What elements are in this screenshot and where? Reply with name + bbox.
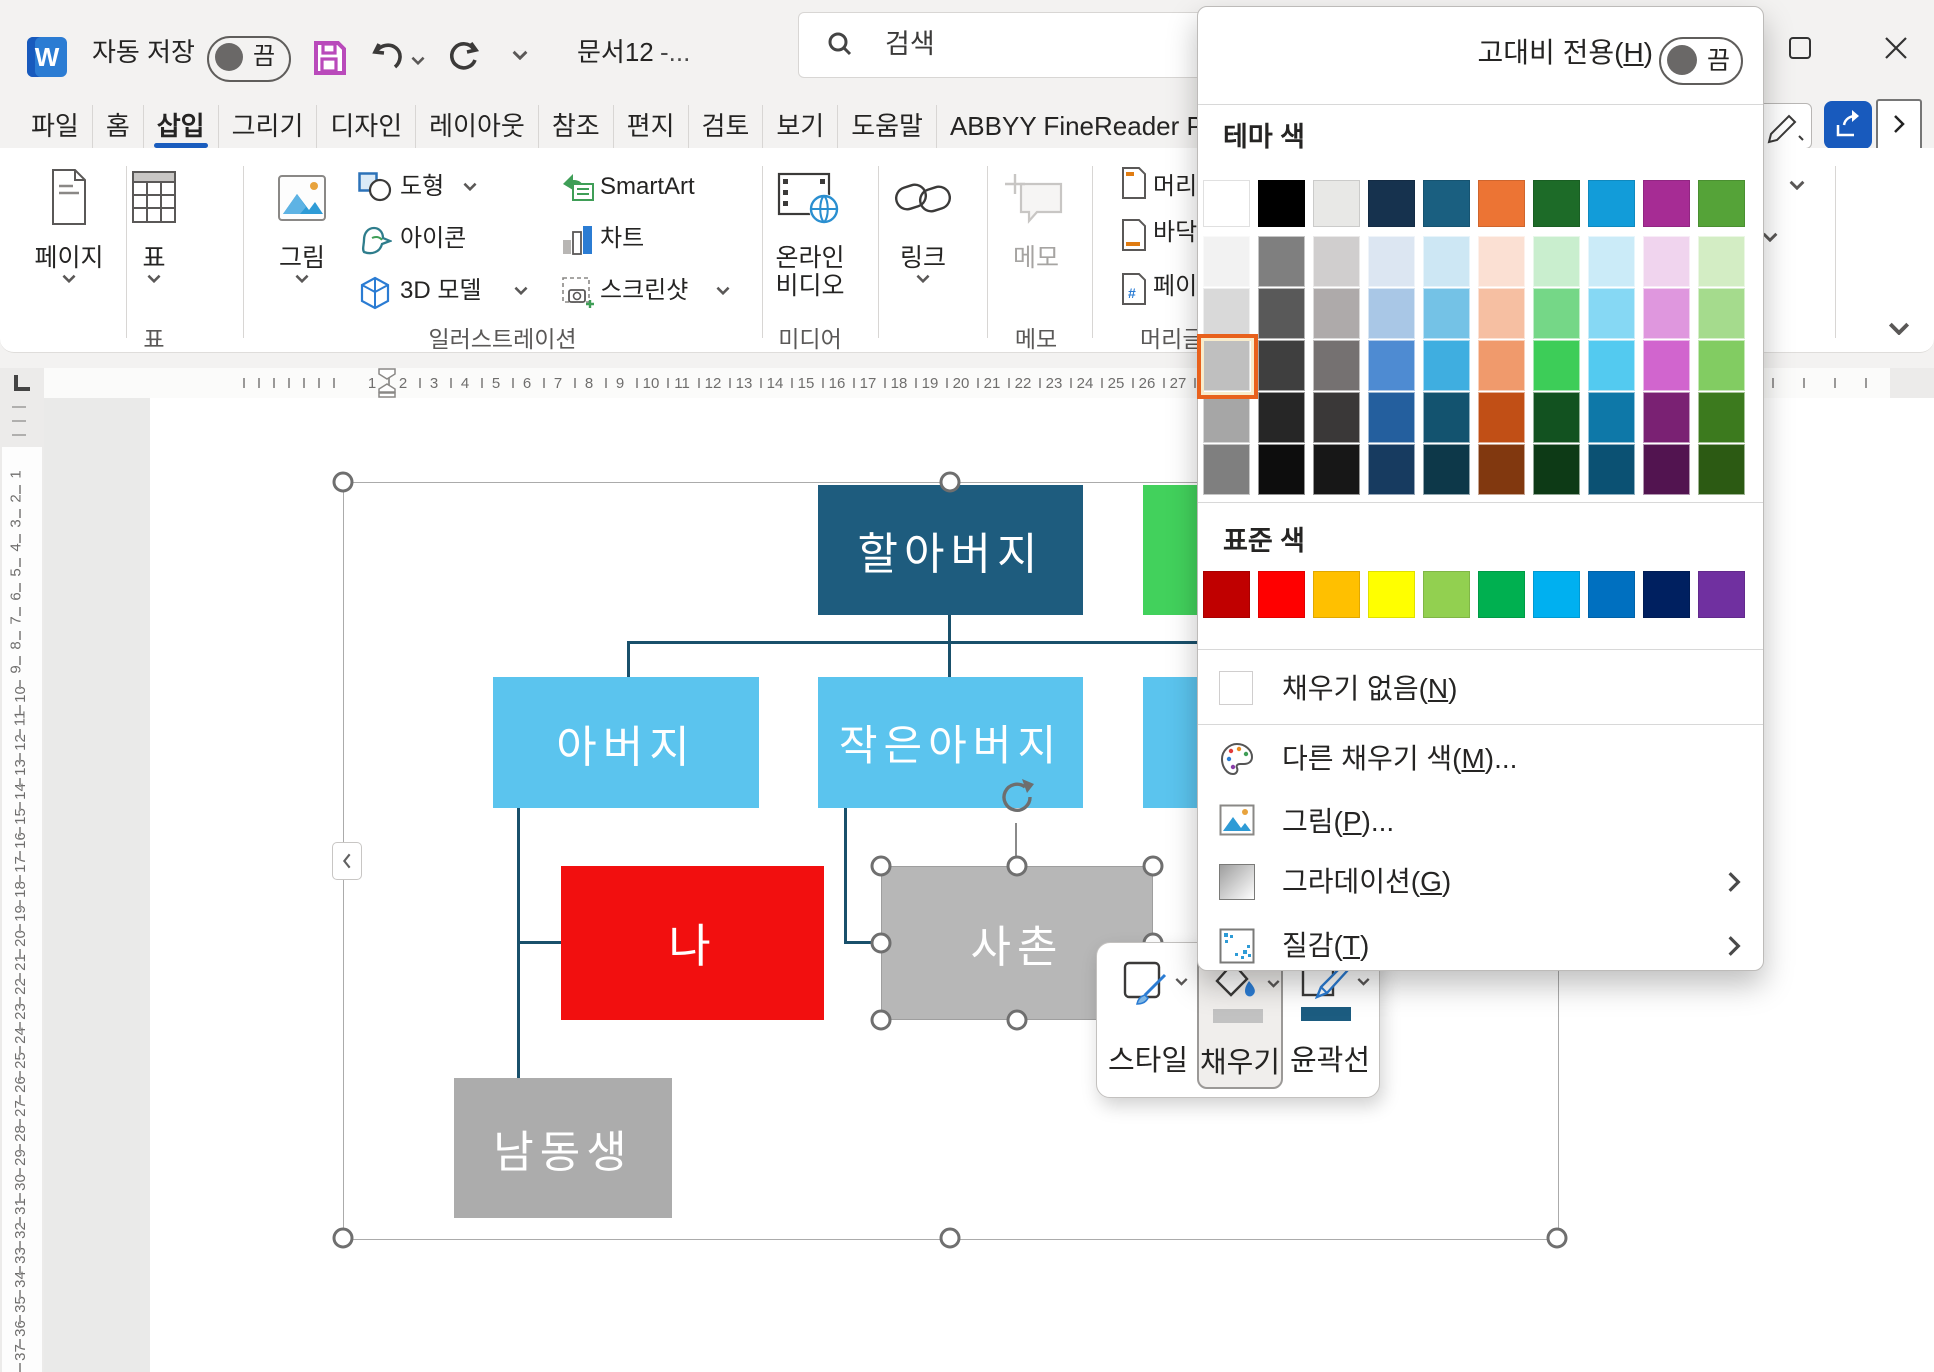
ribbon-tab[interactable]: 디자인 [316,105,415,148]
ruler-number: 7 [8,617,25,625]
ruler-number: 6 [8,592,25,600]
standard-color-swatch[interactable] [1588,571,1635,618]
ruler-tick [12,434,26,436]
ruler-tick [19,1315,21,1324]
ribbon-tab[interactable]: 그리기 [218,105,317,148]
rotate-handle-icon[interactable] [994,774,1040,820]
fill-color-dropdown: 고대비 전용(H) 끔 테마 색 표준 색 채우기 없음(N) 다른 채우기 색… [1197,6,1764,971]
menu-item-more-colors[interactable]: 다른 채우기 색(M)... [1213,737,1753,781]
hanging-indent-marker[interactable] [378,383,396,398]
resize-handle[interactable] [871,1010,892,1031]
word-window: W 자동 저장 끔 문서12 -... 검색 [0,0,1934,1372]
smartart-icon[interactable] [561,172,595,202]
ruler-number: 4 [8,544,25,552]
ruler-number: 2 [8,495,25,503]
ruler-tick [19,583,21,592]
share-button[interactable] [1824,101,1872,149]
ruler-tick [19,1217,21,1226]
resize-handle[interactable] [940,472,961,493]
ruler-tick [853,378,855,388]
style-brush-icon [1121,959,1173,1011]
ribbon-tab[interactable]: 도움말 [837,105,936,148]
ruler-tick [19,1193,21,1202]
ruler-tick [19,1241,21,1250]
picture-icon [1219,804,1255,836]
theme-color-swatch[interactable] [1643,180,1690,227]
theme-variant-swatch[interactable] [1643,392,1690,443]
toggle-knob-icon [1667,45,1697,75]
submenu-chevron-icon [1727,935,1741,957]
hidden-group-chevron-icon[interactable] [1789,180,1805,190]
ruler-tick [822,378,824,388]
ruler-tick [19,1046,21,1055]
ruler-tick [19,851,21,860]
ruler-tick [12,420,26,422]
standard-color-swatch[interactable] [1258,571,1305,618]
ruler-tick [19,485,21,494]
standard-color-swatch[interactable] [1698,571,1745,618]
shapes-button[interactable]: 도형 [400,170,444,204]
standard-color-swatch[interactable] [1478,571,1525,618]
ruler-end [1890,368,1934,398]
theme-variant-swatch[interactable] [1368,444,1415,495]
redo-button[interactable] [446,40,480,72]
ruler-tick [19,875,21,884]
more-options-button[interactable] [1876,99,1922,151]
theme-color-swatch[interactable] [1368,180,1415,227]
ruler-tick [19,900,21,909]
undo-dropdown-icon[interactable] [411,56,425,65]
ribbon-separator [243,166,244,338]
shapes-icon[interactable] [358,172,392,202]
ruler-tick [273,378,275,388]
ruler-number: 13 [736,375,753,392]
menu-separator [1198,502,1763,503]
style-label: 스타일 [1105,1037,1191,1079]
icons-icon[interactable] [358,224,392,256]
fill-button[interactable]: 채우기 [1197,951,1283,1089]
ruler-tick [543,378,545,388]
ribbon-tab[interactable]: 삽입 [143,105,218,148]
maximize-button[interactable] [1782,30,1818,66]
ruler-number: 25 [1108,375,1125,392]
media-group-label: 미디어 [769,320,851,354]
ruler-tick [1194,378,1196,388]
ruler-tick [19,802,21,811]
illustration-group-label: 일러스트레이션 [400,320,605,354]
table-icon[interactable] [131,170,177,224]
theme-colors-label: 테마 색 [1223,115,1305,154]
theme-variant-swatch[interactable] [1423,444,1470,495]
theme-variant-swatch[interactable] [1698,444,1745,495]
comment-icon[interactable] [1003,170,1067,228]
ruler-number: 8 [8,641,25,649]
ribbon-tab[interactable]: 참조 [538,105,613,148]
theme-variant-swatch[interactable] [1423,340,1470,391]
ruler-tick [19,1290,21,1299]
menu-separator [1198,724,1763,725]
ruler-tick [243,378,245,388]
ruler-tick [667,378,669,388]
ruler-number: 5 [492,375,500,392]
link-icon[interactable] [893,176,953,220]
3d-model-chevron-icon [514,286,528,295]
theme-color-swatch[interactable] [1423,180,1470,227]
ruler-tick [19,558,21,567]
theme-variant-swatch[interactable] [1368,392,1415,443]
ruler-number: 12 [705,375,722,392]
standard-color-swatch[interactable] [1423,571,1470,618]
high-contrast-toggle[interactable]: 끔 [1659,37,1743,85]
ruler-tick [19,1119,21,1128]
ruler-number: 23 [1046,375,1063,392]
ruler-tick [19,509,21,518]
footer-button[interactable]: 바닥글 [1153,216,1197,250]
theme-variant-swatch[interactable] [1698,288,1745,339]
menu-item-texture[interactable]: 질감(T) [1213,924,1753,968]
outline-label: 윤곽선 [1287,1037,1373,1079]
ruler-tick [19,1144,21,1153]
theme-variant-swatch[interactable] [1643,444,1690,495]
ruler-tick [1865,378,1867,388]
link-chevron-icon [916,274,930,283]
ribbon-separator [987,166,988,338]
chevron-down-icon [1357,977,1370,986]
toggle-knob-icon [215,43,243,71]
ruler-tick [19,949,21,958]
ruler-tick [19,1168,21,1177]
smartart-button[interactable]: SmartArt [600,170,695,204]
ruler-number: 3 [8,519,25,527]
ruler-number: 20 [953,375,970,392]
standard-color-swatch[interactable] [1643,571,1690,618]
theme-variant-swatch[interactable] [1203,444,1250,495]
theme-variant-swatch[interactable] [1423,392,1470,443]
ruler-tick [760,378,762,388]
page-number-icon[interactable]: # [1121,272,1147,306]
theme-variant-swatch[interactable] [1313,444,1360,495]
theme-variant-swatch[interactable] [1203,288,1250,339]
icons-button[interactable]: 아이콘 [400,222,466,256]
theme-variant-swatch[interactable] [1258,236,1305,287]
theme-variant-swatch[interactable] [1478,444,1525,495]
ruler-tick [946,378,948,388]
ruler-tick [12,406,26,408]
ruler-tick [1101,378,1103,388]
ribbon-tab[interactable]: 검토 [688,105,763,148]
search-input[interactable]: 검색 [798,12,1220,78]
hidden-group-chevron-icon[interactable] [1762,232,1778,242]
theme-variant-swatch[interactable] [1643,236,1690,287]
ribbon-tab[interactable]: 보기 [762,105,837,148]
theme-variant-swatch[interactable] [1368,236,1415,287]
ruler-corner [0,368,44,398]
theme-variant-swatch[interactable] [1258,288,1305,339]
ruler-tick [636,378,638,388]
menu-item-picture[interactable]: 그림(P)... [1213,800,1753,844]
theme-variant-swatch[interactable] [1533,392,1580,443]
ruler-number: 1 [8,470,25,478]
standard-color-swatch[interactable] [1368,571,1415,618]
texture-icon [1219,928,1255,964]
theme-variant-swatch[interactable] [1478,392,1525,443]
style-button[interactable]: 스타일 [1105,951,1191,1089]
pages-button[interactable]: 페이지 [28,238,110,274]
ruler-tick [450,378,452,388]
ruler-number: 21 [984,375,1001,392]
high-contrast-label: 고대비 전용(H) [1478,31,1653,71]
pages-icon[interactable] [49,168,89,226]
first-line-indent-marker[interactable] [378,368,396,380]
menu-item-no-fill[interactable]: 채우기 없음(N) [1213,667,1753,711]
theme-variant-swatch[interactable] [1643,288,1690,339]
ruler-tick [19,534,21,543]
ruler-tick [19,631,21,640]
resize-handle[interactable] [333,472,354,493]
theme-variant-swatch[interactable] [1368,340,1415,391]
standard-color-swatch[interactable] [1533,571,1580,618]
ruler-number: 17 [860,375,877,392]
theme-variant-swatch[interactable] [1588,392,1635,443]
standard-color-grid [1203,571,1745,618]
draw-pen-button[interactable] [1758,103,1812,149]
pages-chevron-icon [62,274,76,283]
ruler-tick [1039,378,1041,388]
table-group-label: 표 [113,320,195,354]
header-icon[interactable] [1121,166,1147,200]
resize-handle[interactable] [940,1228,961,1249]
fill-label: 채우기 [1199,1039,1281,1081]
ruler-tick [19,997,21,1006]
outline-color-bar [1301,1007,1351,1021]
ribbon-tab[interactable]: 파일 [18,105,92,148]
ruler-tick [19,973,21,982]
chart-icon[interactable] [561,224,595,256]
ruler-number: 10 [643,375,660,392]
screenshot-chevron-icon [716,286,730,295]
ruler-tick [19,607,21,616]
table-button[interactable]: 표 [113,238,195,274]
ruler-tick [19,705,21,714]
menu-item-gradient[interactable]: 그라데이션(G) [1213,860,1753,904]
memo-button[interactable]: 메모 [995,238,1077,274]
ribbon-tab[interactable]: 홈 [92,105,143,148]
ruler-tick [19,1266,21,1275]
ruler-tick [19,1095,21,1104]
undo-button[interactable] [371,40,405,72]
theme-color-swatch[interactable] [1313,180,1360,227]
standard-color-swatch[interactable] [1203,571,1250,618]
autosave-toggle[interactable]: 끔 [207,36,291,82]
theme-color-swatch[interactable] [1478,180,1525,227]
text-pane-toggle-button[interactable] [332,842,362,880]
header-button[interactable]: 머리글 [1153,170,1197,204]
ribbon-separator [1835,166,1836,338]
ruler-number: 15 [798,375,815,392]
ruler-tick [884,378,886,388]
ruler-number: 4 [461,375,469,392]
theme-variant-swatch[interactable] [1258,392,1305,443]
menu-separator [1198,104,1763,105]
ribbon-separator [762,166,763,338]
ruler-number: 9 [8,666,25,674]
theme-variant-swatch[interactable] [1258,340,1305,391]
outline-button[interactable]: 윤곽선 [1287,951,1373,1089]
ruler-tick [1132,378,1134,388]
standard-color-swatch[interactable] [1313,571,1360,618]
ruler-tick [19,753,21,762]
resize-handle[interactable] [333,1228,354,1249]
picture-button[interactable]: 그림 [261,238,343,274]
theme-variant-swatch[interactable] [1533,236,1580,287]
autosave-label: 자동 저장 [92,0,195,105]
ruler-tick [1070,378,1072,388]
theme-variant-swatch[interactable] [1368,288,1415,339]
theme-variant-swatch[interactable] [1478,340,1525,391]
save-icon[interactable] [313,40,347,76]
document-title: 문서12 [577,0,654,105]
gradient-icon [1219,864,1255,900]
theme-variant-swatch[interactable] [1313,288,1360,339]
ruler-number: 27 [1170,375,1187,392]
theme-color-swatch[interactable] [1533,180,1580,227]
chart-button[interactable]: 차트 [600,222,644,256]
quick-access-chevron-icon[interactable] [512,50,528,60]
ruler-tick [19,1071,21,1080]
ruler-number: 14 [767,375,784,392]
resize-handle[interactable] [1547,1228,1568,1249]
ruler-tick [698,378,700,388]
theme-variant-swatch[interactable] [1588,288,1635,339]
page-number-button[interactable]: 페이지 번호 [1153,270,1197,304]
ruler-tick [729,378,731,388]
picture-icon[interactable] [277,172,327,224]
theme-variant-grid [1203,236,1745,495]
ruler-tick [19,778,21,787]
theme-variant-swatch[interactable] [1313,236,1360,287]
theme-color-swatch[interactable] [1698,180,1745,227]
ruler-number: 22 [1015,375,1032,392]
search-icon [827,31,853,57]
resize-handle[interactable] [871,933,892,954]
ruler-tick [19,924,21,933]
theme-variant-swatch[interactable] [1313,340,1360,391]
theme-variant-swatch[interactable] [1478,288,1525,339]
theme-variant-swatch[interactable] [1698,236,1745,287]
link-button[interactable]: 링크 [882,238,964,274]
ruler-tick [791,378,793,388]
ruler-tick [574,378,576,388]
ribbon-tab[interactable]: 편지 [613,105,688,148]
high-contrast-state: 끔 [1707,43,1730,79]
ribbon-tab[interactable]: 레이아웃 [415,105,538,148]
ruler-tick [977,378,979,388]
3d-model-icon[interactable] [358,276,392,310]
collapse-ribbon-chevron-icon[interactable] [1888,322,1910,335]
ruler-tick [19,1022,21,1031]
ruler-number: 16 [829,375,846,392]
ruler-tick [19,1363,21,1372]
3d-model-button[interactable]: 3D 모델 [400,274,482,308]
resize-handle[interactable] [871,856,892,877]
ribbon-separator [1092,166,1093,338]
ruler-tick [288,378,290,388]
theme-variant-swatch[interactable] [1533,340,1580,391]
ruler-tick [915,378,917,388]
ruler-number: 3 [430,375,438,392]
ruler-tick [19,656,21,665]
palette-icon [1219,741,1255,777]
theme-color-swatch[interactable] [1588,180,1635,227]
ruler-tick [1163,378,1165,388]
tab-selector-icon[interactable] [14,375,30,391]
theme-variant-swatch[interactable] [1203,392,1250,443]
ruler-tick [605,378,607,388]
word-logo-icon[interactable]: W [27,37,67,77]
ruler-number: 2 [399,375,407,392]
ruler-number: 7 [554,375,562,392]
theme-color-swatch[interactable] [1203,180,1250,227]
resize-handle[interactable] [1007,856,1028,877]
close-button[interactable] [1878,30,1914,66]
ruler-tick [512,378,514,388]
ruler-number: 5 [8,568,25,576]
theme-variant-swatch[interactable] [1588,236,1635,287]
ruler-tick [1834,378,1836,388]
ruler-number: 11 [674,375,690,392]
ruler-number: 1 [368,375,376,392]
theme-variant-swatch[interactable] [1203,236,1250,287]
theme-variant-swatch[interactable] [1478,236,1525,287]
theme-variant-swatch[interactable] [1698,340,1745,391]
theme-variant-swatch[interactable] [1423,288,1470,339]
ruler-tick [19,680,21,689]
resize-handle[interactable] [1007,1010,1028,1031]
screenshot-icon[interactable] [561,276,597,310]
theme-variant-swatch[interactable] [1533,288,1580,339]
footer-icon[interactable] [1121,218,1147,252]
theme-variant-swatch[interactable] [1588,444,1635,495]
online-video-button-line2[interactable]: 비디오 [769,266,851,302]
search-placeholder: 검색 [885,13,935,75]
theme-variant-swatch[interactable] [1258,444,1305,495]
ruler-number: 6 [523,375,531,392]
theme-variant-swatch[interactable] [1698,392,1745,443]
online-video-icon[interactable] [777,172,843,226]
ruler-tick [1803,378,1805,388]
theme-variant-swatch[interactable] [1643,340,1690,391]
no-fill-icon [1219,671,1253,705]
theme-variant-swatch[interactable] [1423,236,1470,287]
theme-variant-swatch[interactable] [1313,392,1360,443]
theme-variant-swatch[interactable] [1588,340,1635,391]
theme-variant-swatch[interactable] [1533,444,1580,495]
ruler-number: 18 [891,375,908,392]
ruler-tick [419,378,421,388]
selected-color-indicator [1197,334,1258,399]
header-group-label: 머리글/바닥글 [1140,320,1197,354]
screenshot-button[interactable]: 스크린샷 [600,274,688,308]
theme-color-swatch[interactable] [1258,180,1305,227]
resize-handle[interactable] [1143,856,1164,877]
ruler-tick [1008,378,1010,388]
ruler-tick [333,378,335,388]
chevron-down-icon [1175,977,1188,986]
ruler-number: 26 [1139,375,1156,392]
memo-group-label: 메모 [995,320,1077,354]
ruler-number: 24 [1077,375,1094,392]
ruler-tick [303,378,305,388]
